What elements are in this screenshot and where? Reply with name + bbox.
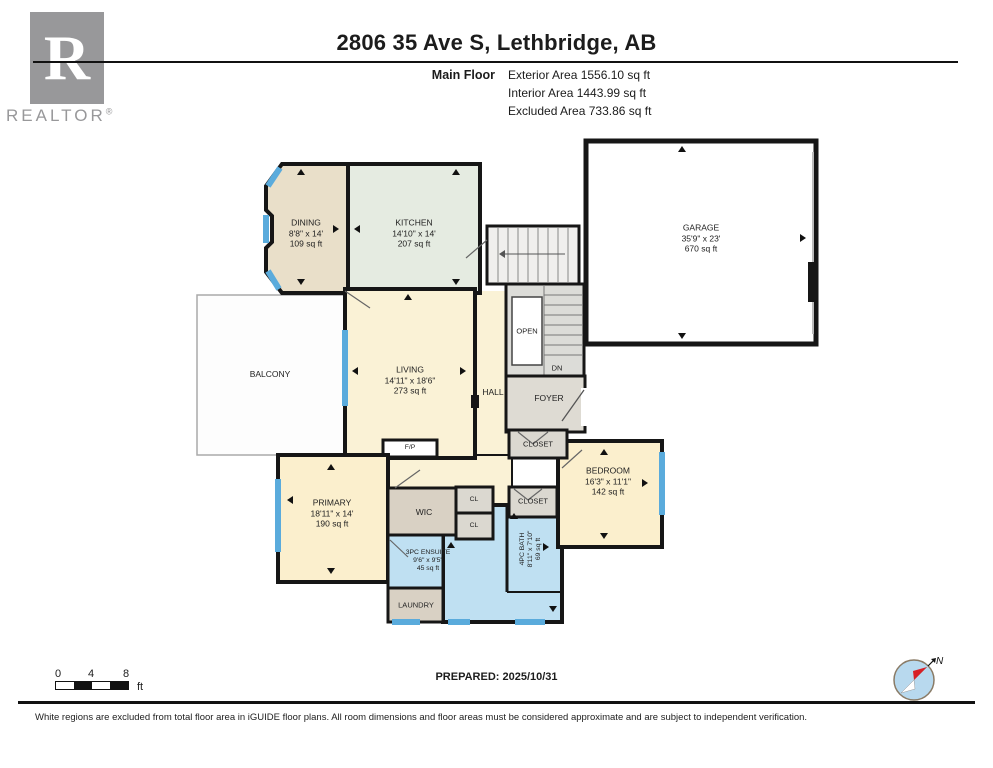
room-dims: 14'11" x 18'6" <box>385 375 436 386</box>
realtor-logo-icon: R <box>30 12 104 104</box>
room-area: 207 sq ft <box>392 238 436 249</box>
room-dims: 35'9" x 23' <box>682 233 721 244</box>
room-name: F/P <box>405 444 416 452</box>
room-area: 109 sq ft <box>289 238 323 249</box>
label-dining: DINING 8'8" x 14' 109 sq ft <box>289 217 323 249</box>
scale-segment <box>92 682 110 689</box>
room-name: BEDROOM <box>585 465 631 476</box>
floorplan-drawing: N <box>0 0 993 768</box>
label-cl1: CL <box>470 496 479 504</box>
room-name: CLOSET <box>523 440 553 449</box>
room-name: LIVING <box>385 364 436 375</box>
label-bath: 4PC BATH 8'11" x 7'10" 69 sq ft <box>519 531 543 568</box>
scale-segment <box>56 682 74 689</box>
label-cl2: CL <box>470 522 479 530</box>
scale-segment <box>110 682 128 689</box>
room-name: BALCONY <box>250 369 291 380</box>
stair-landing-shape <box>466 226 579 284</box>
label-ensuite: 3PC ENSUITE 9'6" x 9'5" 45 sq ft <box>406 549 451 573</box>
room-name: CL <box>470 522 479 530</box>
room-name: 4PC BATH <box>519 531 527 568</box>
room-name: CL <box>470 496 479 504</box>
room-name: 3PC ENSUITE <box>406 549 451 557</box>
room-area: 45 sq ft <box>406 565 451 573</box>
label-hall: HALL <box>482 387 503 398</box>
floorplan-page: R REALTOR® 2806 35 Ave S, Lethbridge, AB… <box>0 0 993 768</box>
scale-segment <box>74 682 92 689</box>
room-area: 190 sq ft <box>311 518 354 529</box>
label-dn: DN <box>552 364 563 373</box>
label-closet-bedroom: CLOSET <box>518 497 548 506</box>
header-divider <box>33 61 958 63</box>
label-fireplace: F/P <box>405 444 416 452</box>
label-garage: GARAGE 35'9" x 23' 670 sq ft <box>682 222 721 254</box>
registered-mark: ® <box>106 106 116 116</box>
room-name: KITCHEN <box>392 217 436 228</box>
room-name: DN <box>552 364 563 373</box>
room-dims: 16'3" x 11'1" <box>585 476 631 487</box>
room-name: FOYER <box>534 393 563 404</box>
label-bedroom: BEDROOM 16'3" x 11'1" 142 sq ft <box>585 465 631 497</box>
room-name: GARAGE <box>682 222 721 233</box>
room-dims: 8'11" x 7'10" <box>527 531 535 568</box>
room-name: HALL <box>482 387 503 398</box>
label-closet-foyer: CLOSET <box>523 440 553 449</box>
label-open: OPEN <box>516 327 537 336</box>
compass-north-label: N <box>936 656 944 667</box>
label-living: LIVING 14'11" x 18'6" 273 sq ft <box>385 364 436 396</box>
label-laundry: LAUNDRY <box>398 601 434 610</box>
label-wic: WIC <box>416 507 433 518</box>
room-area: 142 sq ft <box>585 486 631 497</box>
room-name: CLOSET <box>518 497 548 506</box>
room-name: DINING <box>289 217 323 228</box>
realtor-logo-word: REALTOR® <box>6 106 126 126</box>
room-name: OPEN <box>516 327 537 336</box>
room-name: WIC <box>416 507 433 518</box>
room-area: 69 sq ft <box>535 531 543 568</box>
room-dims: 9'6" x 9'5" <box>406 557 451 565</box>
room-dims: 14'10" x 14' <box>392 228 436 239</box>
prepared-date: PREPARED: 2025/10/31 <box>0 671 993 683</box>
label-primary: PRIMARY 18'11" x 14' 190 sq ft <box>311 497 354 529</box>
room-dims: 8'8" x 14' <box>289 228 323 239</box>
room-dims: 18'11" x 14' <box>311 508 354 519</box>
room-name: PRIMARY <box>311 497 354 508</box>
label-kitchen: KITCHEN 14'10" x 14' 207 sq ft <box>392 217 436 249</box>
label-balcony: BALCONY <box>250 369 291 380</box>
room-foyer-shape <box>506 376 589 432</box>
realtor-logo-text: REALTOR <box>6 106 106 125</box>
room-name: LAUNDRY <box>398 601 434 610</box>
label-foyer: FOYER <box>534 393 563 404</box>
room-area: 670 sq ft <box>682 243 721 254</box>
room-area: 273 sq ft <box>385 385 436 396</box>
